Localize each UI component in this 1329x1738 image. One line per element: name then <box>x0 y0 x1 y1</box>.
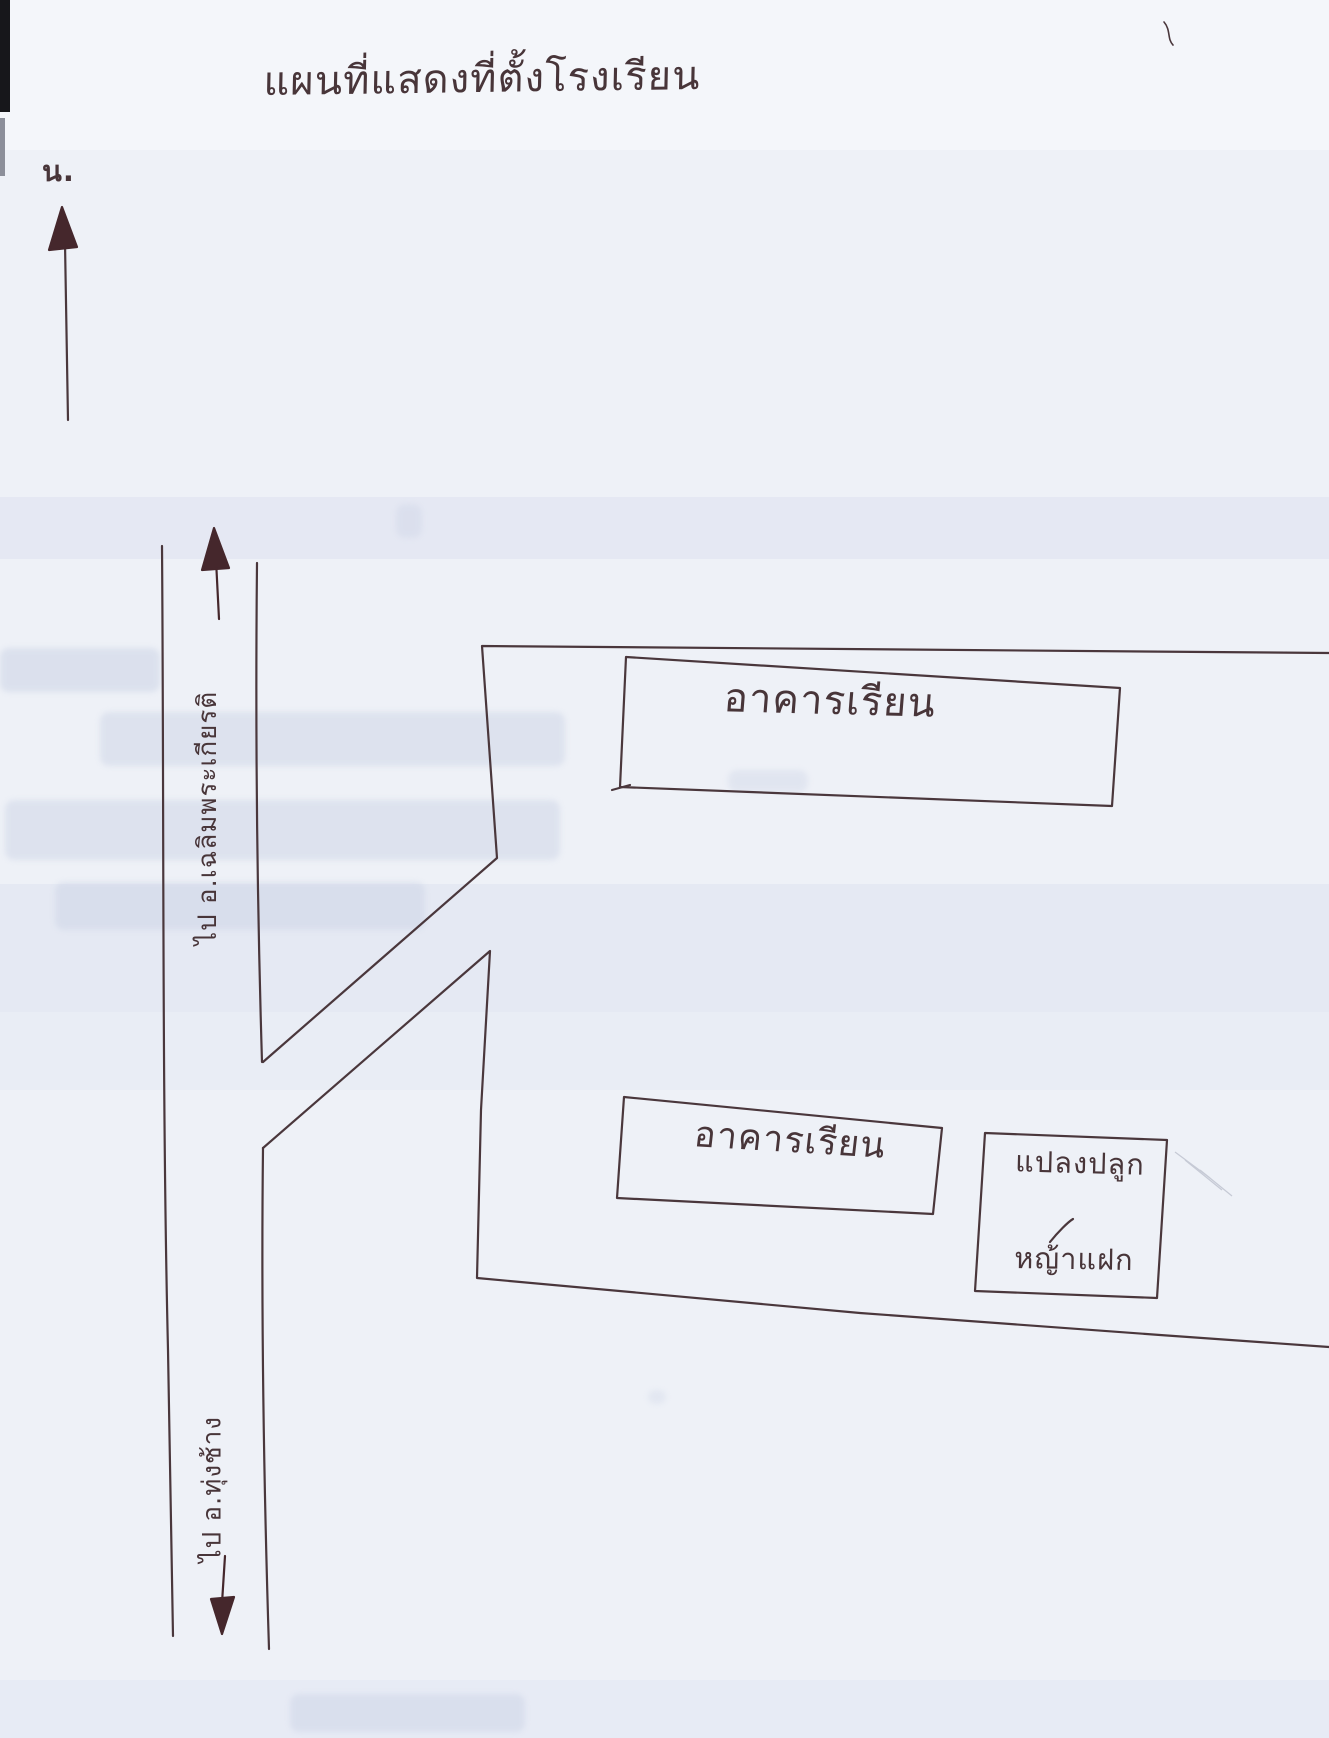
map-title: แผนที่แสดงที่ตั้งโรงเรียน <box>252 55 713 103</box>
vetiver-plot-label-line2: หญ้าแฝก <box>988 1243 1161 1276</box>
road-right-line-upper <box>256 563 262 1062</box>
pencil-hatch <box>1185 1160 1222 1190</box>
road-destination-south-label: ไป อ.ทุ่งช้าง <box>200 1358 234 1563</box>
road-arrow-down-shaft <box>222 1556 225 1603</box>
pencil-hatch <box>1200 1170 1232 1196</box>
north-arrow-shaft <box>65 243 68 420</box>
road-right-line-lower <box>262 1148 269 1649</box>
road-left-line <box>162 546 173 1636</box>
north-label: น. <box>42 156 75 186</box>
road-arrow-up-head <box>202 528 229 570</box>
stray-pen-mark <box>1164 22 1173 45</box>
scanned-map-page: แผนที่แสดงที่ตั้งโรงเรียน น. ไป อ.เฉลิมพ… <box>0 0 1329 1738</box>
road-destination-north-label: ไป อ.เฉลิมพระเกียรติ <box>195 615 229 945</box>
road-arrow-down-head <box>211 1597 234 1634</box>
vetiver-plot-label-line1: แปลงปลูก <box>995 1146 1166 1181</box>
vetiver-plot-check-stroke <box>1050 1219 1073 1242</box>
north-arrow-head <box>49 207 77 250</box>
